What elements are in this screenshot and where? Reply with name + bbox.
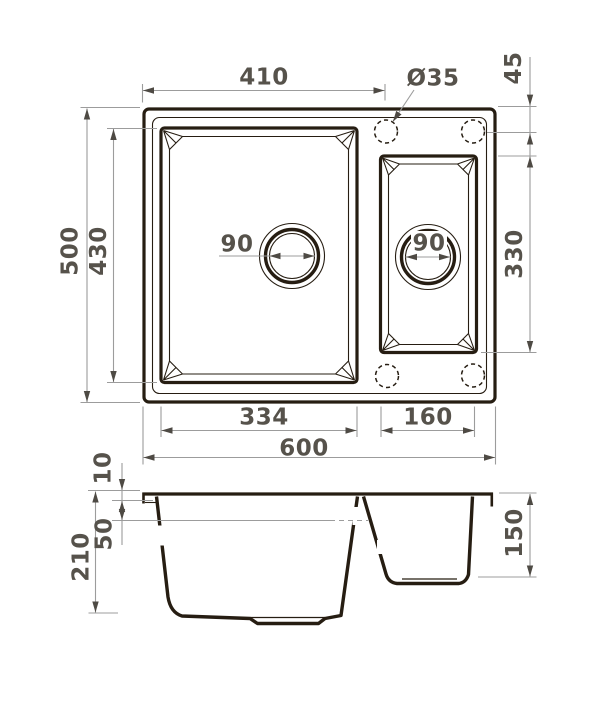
dim-main-bowl-depth-label: 430 [86,226,112,276]
main-bowl-profile [157,497,358,624]
dim-small-bowl-width-label: 160 [403,404,453,430]
faucet-hole-top-left [375,120,398,143]
dim-hole-offset-label: 45 [501,51,527,84]
dim-small-bowl-depth-label: 330 [502,229,528,279]
faucet-hole-top-right [462,120,485,143]
dim-main-bowl-width-label: 334 [239,404,289,430]
dim-main-drain-label: 90 [220,231,253,257]
dim-small-depth-label: 150 [502,508,528,558]
dim-main-depth-label: 210 [68,532,94,582]
dim-overall-depth-label: 500 [57,226,83,276]
dim-overall-width-label: 600 [279,435,329,461]
faucet-hole-bottom-left [376,365,399,388]
dim-ledge-depth-label: 50 [91,517,117,550]
dim-small-drain-label: 90 [412,230,445,256]
sink-technical-drawing: 410 Ø35 45 500 430 90 90 330 334 160 600… [0,0,603,709]
dim-hole-diameter-label: Ø35 [406,65,459,91]
dim-width-to-hole-label: 410 [239,64,289,90]
drawing-canvas: 410 Ø35 45 500 430 90 90 330 334 160 600… [0,0,603,709]
section-view [143,493,494,624]
dim-rim-height-label: 10 [90,451,116,484]
faucet-hole-bottom-right [462,364,485,387]
main-bowl [161,128,357,383]
